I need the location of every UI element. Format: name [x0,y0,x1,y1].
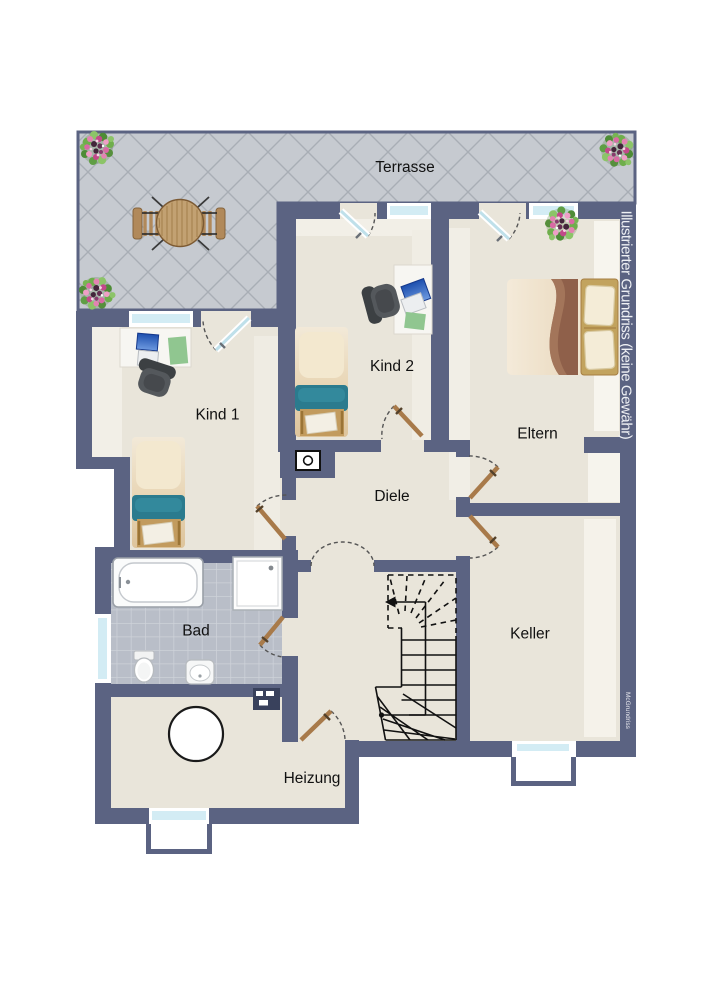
svg-text:Bad: Bad [182,623,210,640]
svg-text:McGrundriss: McGrundriss [624,692,631,730]
svg-text:Kind 1: Kind 1 [196,407,240,424]
svg-text:Diele: Diele [374,488,409,505]
svg-text:Eltern: Eltern [517,426,558,443]
svg-text:Heizung: Heizung [284,770,341,787]
svg-text:Keller: Keller [510,626,550,643]
svg-text:Terrasse: Terrasse [375,159,434,176]
svg-text:Kind 2: Kind 2 [370,358,414,375]
svg-text:Illustrierter Grundriss (keine: Illustrierter Grundriss (keine Gewähr) [618,211,635,440]
